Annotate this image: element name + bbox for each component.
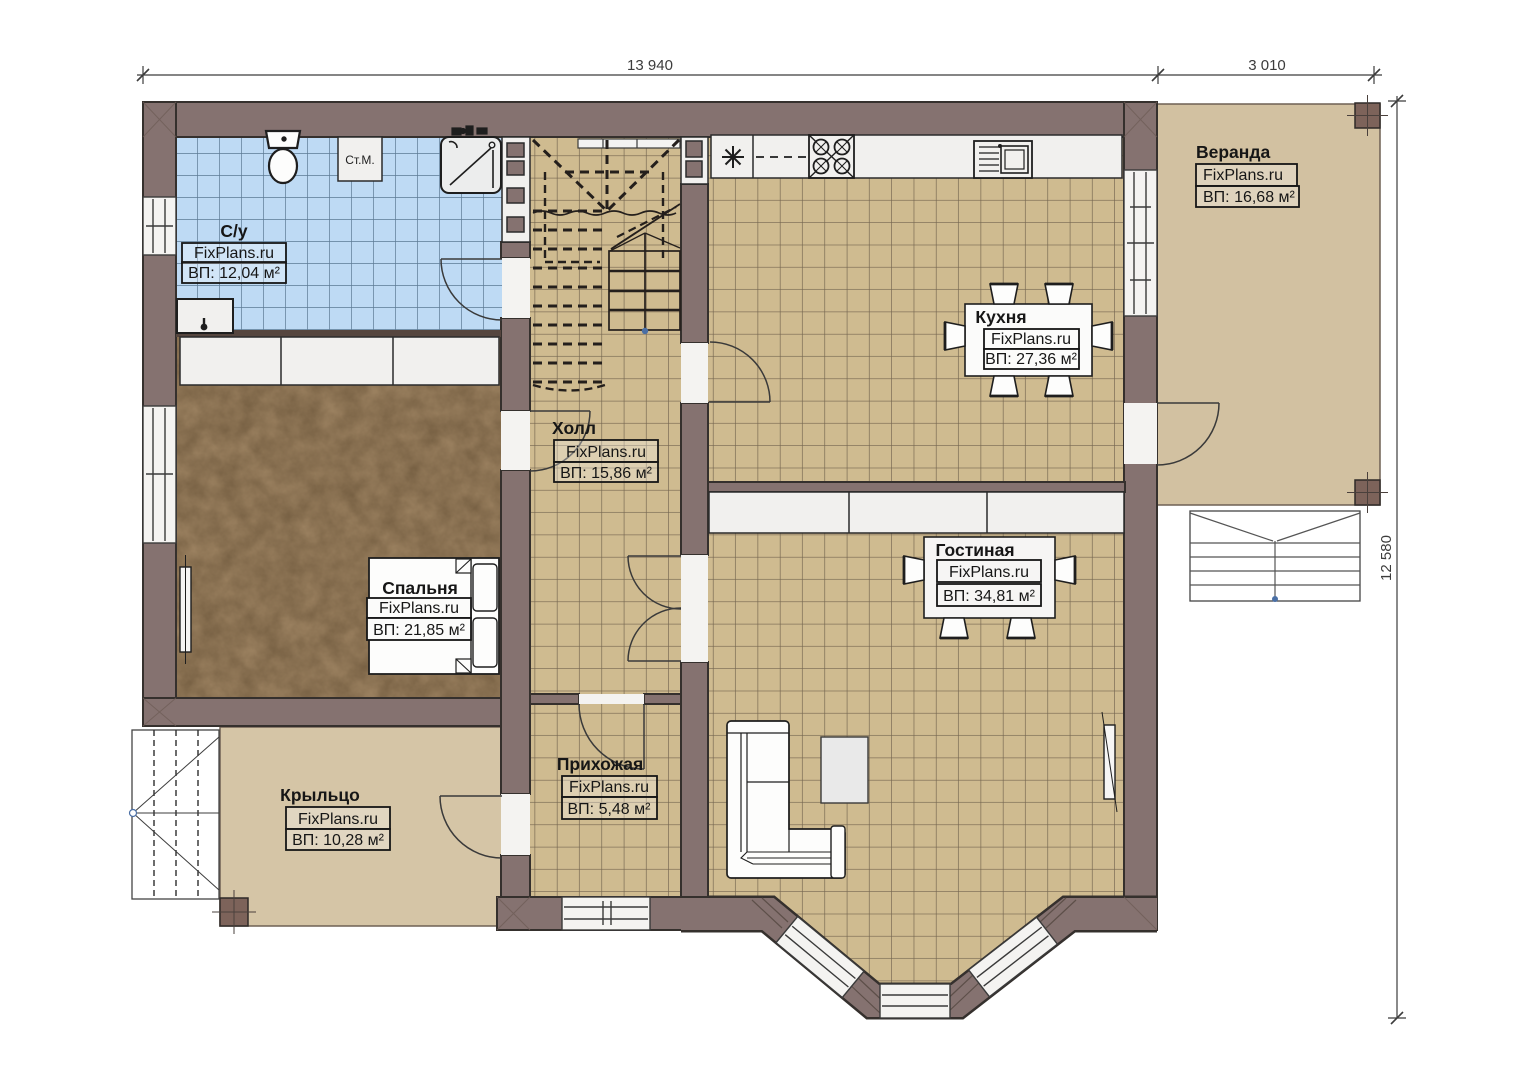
svg-text:Спальня: Спальня <box>382 578 458 598</box>
svg-text:Гостиная: Гостиная <box>935 540 1014 560</box>
svg-text:3 010: 3 010 <box>1248 57 1286 74</box>
svg-text:13 940: 13 940 <box>627 57 673 74</box>
svg-text:Ст.М.: Ст.М. <box>345 153 375 167</box>
svg-text:Крыльцо: Крыльцо <box>280 785 360 805</box>
svg-text:12 580: 12 580 <box>1378 535 1395 581</box>
svg-text:Кухня: Кухня <box>975 307 1026 327</box>
svg-text:FixPlans.ru: FixPlans.ru <box>379 600 459 617</box>
svg-text:ВП: 15,86 м²: ВП: 15,86 м² <box>560 465 653 482</box>
svg-text:FixPlans.ru: FixPlans.ru <box>298 811 378 828</box>
svg-text:FixPlans.ru: FixPlans.ru <box>991 331 1071 348</box>
svg-text:ВП: 27,36 м²: ВП: 27,36 м² <box>985 351 1078 368</box>
svg-text:ВП: 10,28 м²: ВП: 10,28 м² <box>292 832 385 849</box>
svg-text:Холл: Холл <box>552 418 596 438</box>
svg-text:FixPlans.ru: FixPlans.ru <box>569 779 649 796</box>
svg-text:Веранда: Веранда <box>1196 142 1270 162</box>
svg-text:ВП: 12,04 м²: ВП: 12,04 м² <box>188 265 281 282</box>
svg-text:ВП: 21,85 м²: ВП: 21,85 м² <box>373 622 466 639</box>
svg-text:ВП: 34,81 м²: ВП: 34,81 м² <box>943 588 1036 605</box>
svg-text:FixPlans.ru: FixPlans.ru <box>566 444 646 461</box>
svg-text:Прихожая: Прихожая <box>557 754 643 774</box>
svg-text:FixPlans.ru: FixPlans.ru <box>194 245 274 262</box>
svg-text:ВП: 16,68 м²: ВП: 16,68 м² <box>1203 189 1296 206</box>
svg-text:ВП: 5,48 м²: ВП: 5,48 м² <box>568 801 652 818</box>
svg-text:FixPlans.ru: FixPlans.ru <box>949 564 1029 581</box>
svg-text:FixPlans.ru: FixPlans.ru <box>1203 167 1283 184</box>
svg-text:С/у: С/у <box>220 221 248 241</box>
